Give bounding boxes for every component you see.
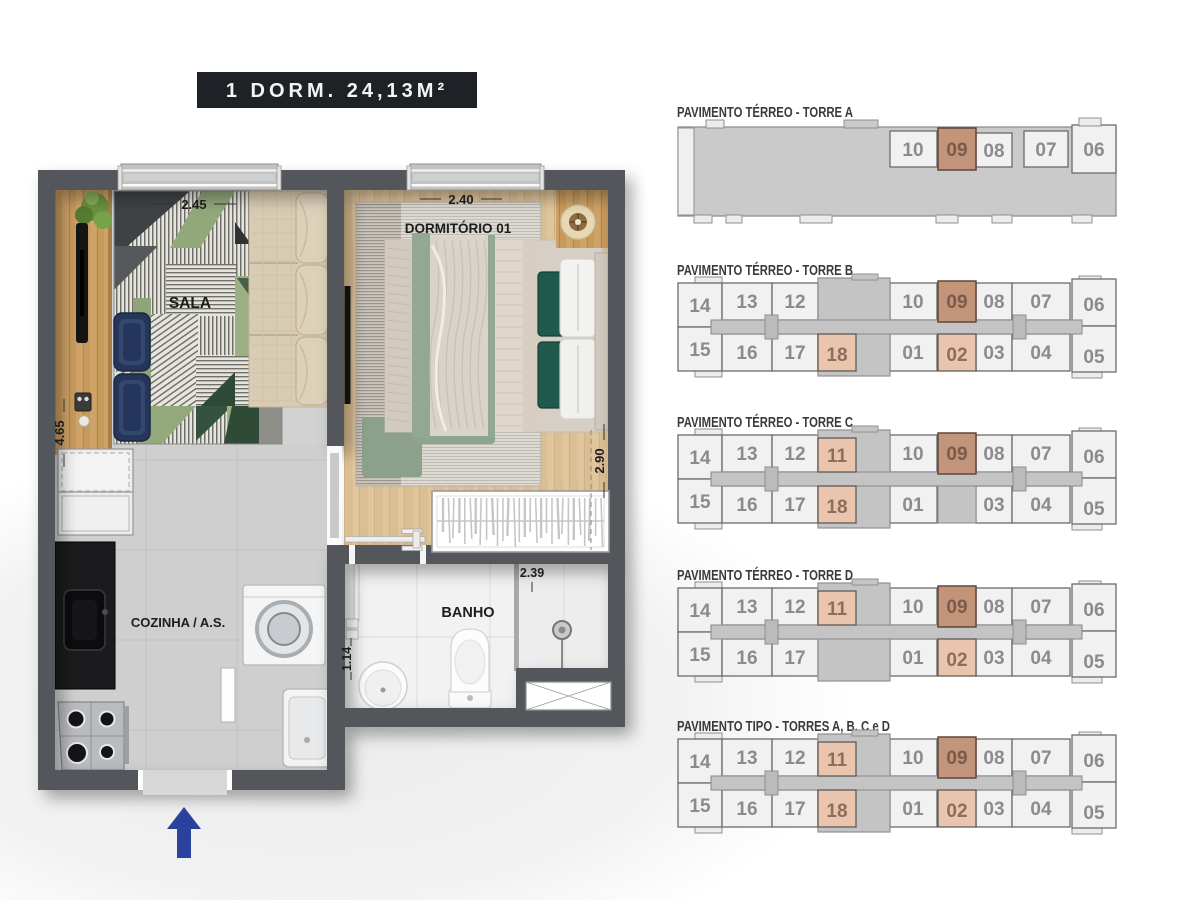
svg-text:07: 07 bbox=[1030, 748, 1051, 769]
svg-text:11: 11 bbox=[827, 599, 848, 620]
svg-text:16: 16 bbox=[736, 495, 757, 516]
svg-text:01: 01 bbox=[902, 343, 924, 364]
svg-text:2.40: 2.40 bbox=[448, 192, 473, 207]
svg-text:16: 16 bbox=[736, 799, 757, 820]
svg-text:01: 01 bbox=[902, 495, 924, 516]
svg-text:COZINHA / A.S.: COZINHA / A.S. bbox=[131, 615, 225, 630]
svg-text:10: 10 bbox=[902, 444, 923, 465]
svg-text:1 DORM. 24,13M²: 1 DORM. 24,13M² bbox=[226, 80, 448, 102]
svg-text:12: 12 bbox=[784, 597, 805, 618]
svg-text:05: 05 bbox=[1083, 803, 1105, 824]
svg-text:14: 14 bbox=[689, 296, 711, 317]
svg-text:2.45: 2.45 bbox=[181, 197, 206, 212]
svg-text:12: 12 bbox=[784, 444, 805, 465]
svg-text:03: 03 bbox=[983, 799, 1004, 820]
svg-text:PAVIMENTO TÉRREO - TORRE D: PAVIMENTO TÉRREO - TORRE D bbox=[677, 567, 853, 584]
svg-text:18: 18 bbox=[826, 497, 847, 518]
svg-text:15: 15 bbox=[689, 645, 711, 666]
svg-text:16: 16 bbox=[736, 343, 757, 364]
svg-text:07: 07 bbox=[1030, 444, 1051, 465]
svg-text:05: 05 bbox=[1083, 347, 1105, 368]
svg-text:12: 12 bbox=[784, 292, 805, 313]
svg-text:08: 08 bbox=[983, 141, 1004, 162]
svg-text:06: 06 bbox=[1083, 447, 1104, 468]
svg-text:05: 05 bbox=[1083, 499, 1105, 520]
svg-text:06: 06 bbox=[1083, 600, 1104, 621]
svg-text:05: 05 bbox=[1083, 652, 1105, 673]
svg-text:02: 02 bbox=[946, 801, 967, 822]
svg-text:03: 03 bbox=[983, 648, 1004, 669]
svg-text:13: 13 bbox=[736, 292, 757, 313]
svg-text:03: 03 bbox=[983, 343, 1004, 364]
svg-text:09: 09 bbox=[946, 748, 967, 769]
svg-text:02: 02 bbox=[946, 345, 967, 366]
svg-text:2.90: 2.90 bbox=[592, 448, 607, 473]
svg-text:08: 08 bbox=[983, 292, 1004, 313]
svg-text:09: 09 bbox=[946, 292, 967, 313]
svg-text:DORMITÓRIO 01: DORMITÓRIO 01 bbox=[405, 221, 512, 236]
svg-text:PAVIMENTO TÉRREO - TORRE C: PAVIMENTO TÉRREO - TORRE C bbox=[677, 414, 853, 431]
svg-text:1.14: 1.14 bbox=[340, 647, 354, 671]
svg-text:07: 07 bbox=[1035, 140, 1056, 161]
svg-text:01: 01 bbox=[902, 799, 924, 820]
svg-text:10: 10 bbox=[902, 748, 923, 769]
svg-text:PAVIMENTO TÉRREO - TORRE B: PAVIMENTO TÉRREO - TORRE B bbox=[677, 262, 853, 279]
svg-text:03: 03 bbox=[983, 495, 1004, 516]
svg-text:08: 08 bbox=[983, 748, 1004, 769]
svg-text:07: 07 bbox=[1030, 292, 1051, 313]
svg-text:15: 15 bbox=[689, 492, 711, 513]
svg-text:14: 14 bbox=[689, 752, 711, 773]
svg-text:17: 17 bbox=[784, 343, 805, 364]
svg-text:SALA: SALA bbox=[169, 295, 211, 312]
svg-text:04: 04 bbox=[1030, 495, 1052, 516]
svg-text:07: 07 bbox=[1030, 597, 1051, 618]
svg-text:08: 08 bbox=[983, 597, 1004, 618]
svg-text:13: 13 bbox=[736, 748, 757, 769]
svg-text:06: 06 bbox=[1083, 751, 1104, 772]
svg-text:10: 10 bbox=[902, 597, 923, 618]
svg-text:16: 16 bbox=[736, 648, 757, 669]
svg-text:10: 10 bbox=[902, 292, 923, 313]
svg-text:06: 06 bbox=[1083, 140, 1104, 161]
svg-text:02: 02 bbox=[946, 650, 967, 671]
svg-text:BANHO: BANHO bbox=[441, 605, 494, 621]
svg-text:01: 01 bbox=[902, 648, 924, 669]
svg-text:09: 09 bbox=[946, 597, 967, 618]
svg-text:06: 06 bbox=[1083, 295, 1104, 316]
svg-text:15: 15 bbox=[689, 340, 711, 361]
svg-text:PAVIMENTO TÉRREO - TORRE A: PAVIMENTO TÉRREO - TORRE A bbox=[677, 104, 853, 121]
svg-text:18: 18 bbox=[826, 801, 847, 822]
svg-text:04: 04 bbox=[1030, 799, 1052, 820]
svg-text:08: 08 bbox=[983, 444, 1004, 465]
svg-text:14: 14 bbox=[689, 448, 711, 469]
svg-text:11: 11 bbox=[827, 446, 848, 467]
svg-text:09: 09 bbox=[946, 444, 967, 465]
svg-text:11: 11 bbox=[827, 750, 848, 771]
svg-text:17: 17 bbox=[784, 799, 805, 820]
svg-text:04: 04 bbox=[1030, 648, 1052, 669]
svg-text:04: 04 bbox=[1030, 343, 1052, 364]
svg-text:13: 13 bbox=[736, 444, 757, 465]
svg-text:2.39: 2.39 bbox=[520, 566, 544, 580]
svg-text:4.65: 4.65 bbox=[52, 420, 67, 445]
svg-text:10: 10 bbox=[902, 140, 923, 161]
svg-text:18: 18 bbox=[826, 345, 847, 366]
svg-text:17: 17 bbox=[784, 648, 805, 669]
svg-text:13: 13 bbox=[736, 597, 757, 618]
svg-text:17: 17 bbox=[784, 495, 805, 516]
svg-text:09: 09 bbox=[946, 140, 967, 161]
svg-text:12: 12 bbox=[784, 748, 805, 769]
svg-text:14: 14 bbox=[689, 601, 711, 622]
svg-text:15: 15 bbox=[689, 796, 711, 817]
